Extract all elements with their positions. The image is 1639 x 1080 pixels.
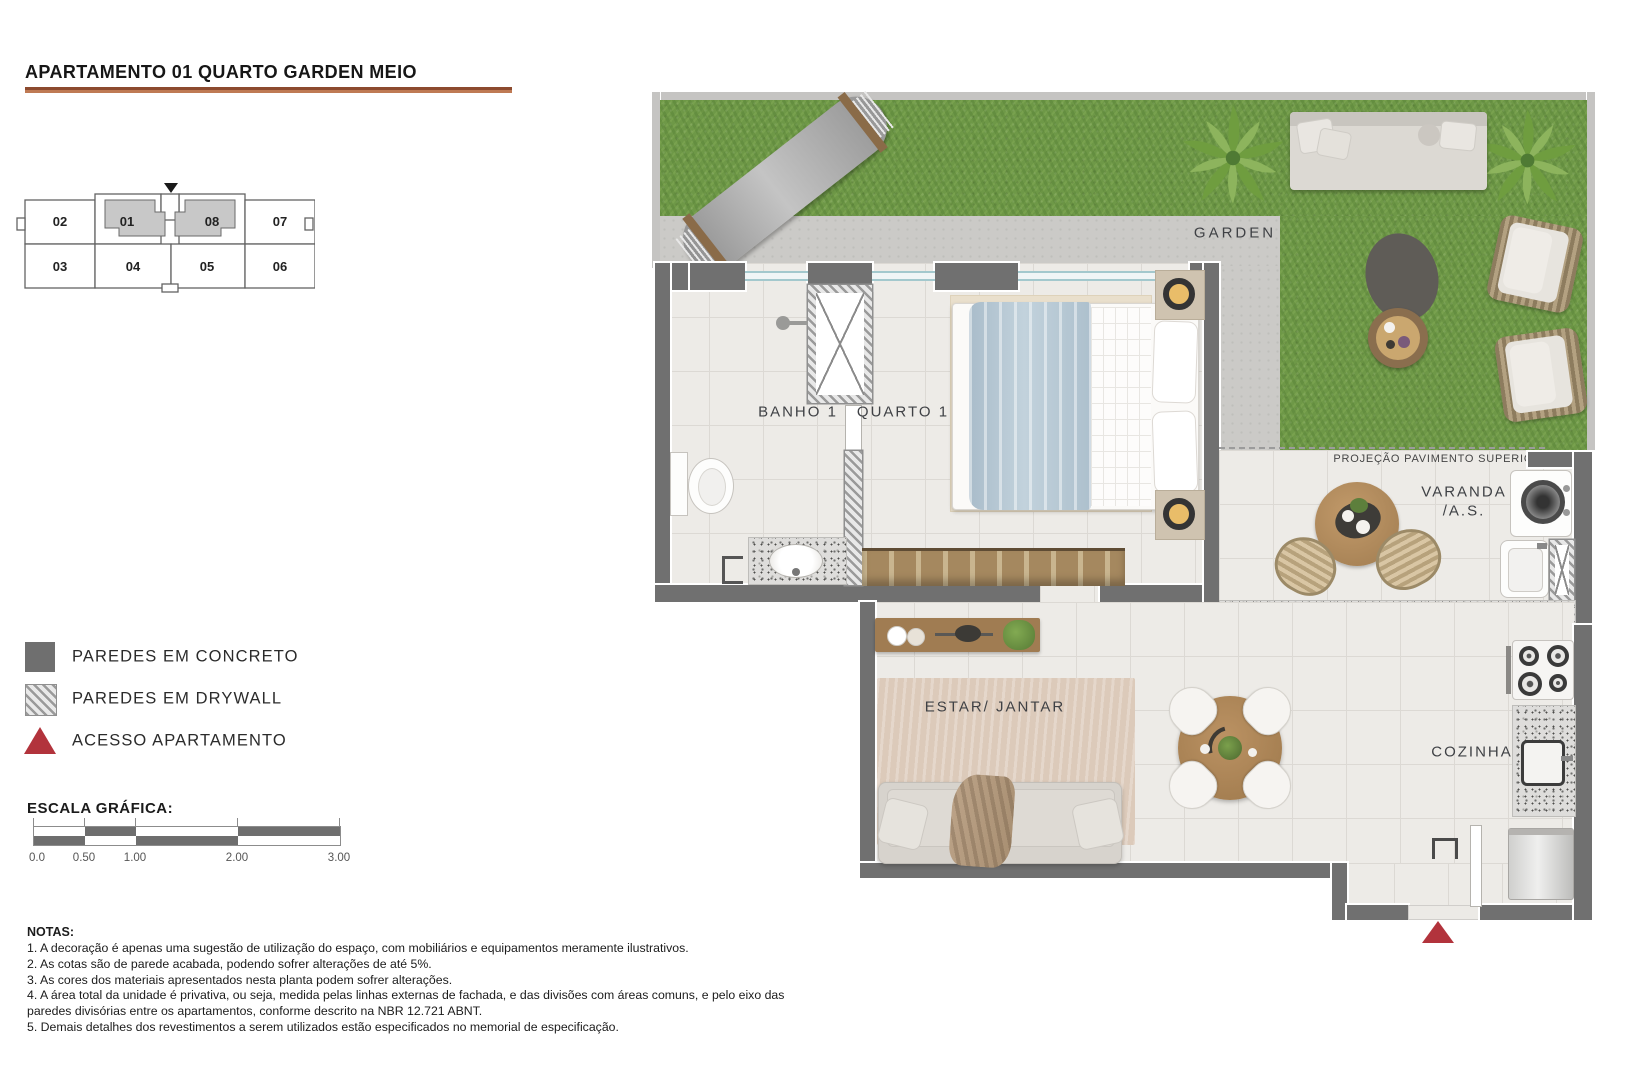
washing-machine — [1510, 470, 1572, 537]
floor-plan: GARDEN BANHO 1 QUARTO 1 — [650, 90, 1600, 950]
wall-right — [1574, 625, 1592, 920]
door-opening — [1040, 585, 1100, 602]
legend-label-concrete: PAREDES EM CONCRETO — [72, 648, 299, 667]
nightstand — [1155, 270, 1205, 320]
cup — [1356, 520, 1370, 534]
key-unit-label: 04 — [126, 259, 141, 274]
key-unit-label: 05 — [200, 259, 214, 274]
entry-door-stop-icon — [1432, 838, 1458, 859]
drywall-column — [1550, 540, 1574, 600]
plate — [1384, 322, 1395, 333]
title-underline — [25, 87, 512, 93]
bed-blanket — [969, 302, 1091, 510]
scale-tick — [237, 818, 238, 826]
decor-candle — [907, 628, 925, 646]
projection-dashed-line — [1219, 447, 1545, 449]
outdoor-sofa-bolster — [1418, 124, 1440, 146]
key-unit-label: 06 — [273, 259, 287, 274]
scale-label: 3.00 — [328, 852, 350, 864]
wall-top — [935, 263, 1018, 290]
armchair-pillow — [1509, 341, 1557, 408]
outdoor-sofa — [1290, 112, 1487, 190]
scale-label: 0.0 — [29, 852, 45, 864]
key-unit-label: 07 — [273, 214, 287, 229]
room-label-cozinha: COZINHA — [1431, 744, 1513, 761]
scale-tick — [135, 818, 136, 826]
kitchen-sink — [1521, 740, 1565, 786]
bed-pillow — [1152, 320, 1199, 403]
table-lamp-icon — [1163, 278, 1195, 310]
scale-seg — [34, 827, 85, 836]
toilet-tank — [670, 452, 688, 516]
scale-seg — [85, 836, 136, 845]
wall-left — [860, 602, 875, 878]
page-title: APARTAMENTO 01 QUARTO GARDEN MEIO — [25, 62, 417, 83]
wall-top — [690, 263, 745, 290]
wall-right — [1204, 263, 1219, 602]
room-label-varanda: VARANDA — [1421, 484, 1506, 501]
plant-sprig — [1350, 498, 1368, 513]
legend-access-triangle-icon — [24, 727, 56, 754]
outdoor-sofa-pillow — [1316, 127, 1353, 161]
table-plant — [1218, 736, 1242, 760]
plate — [1386, 340, 1395, 349]
sofa — [878, 782, 1122, 864]
bed-pillow — [1152, 410, 1199, 493]
shower-arm — [788, 321, 808, 325]
decor-candle — [887, 626, 907, 646]
decor-tray — [955, 625, 981, 642]
outdoor-sofa-pillow — [1439, 120, 1478, 152]
scale-seg — [34, 836, 85, 845]
stove-burner — [1549, 674, 1567, 692]
sideboard — [875, 618, 1040, 652]
bed — [952, 303, 1199, 510]
key-unit-label: 03 — [53, 259, 67, 274]
shower-box — [816, 293, 864, 395]
scale-label: 0.50 — [73, 852, 95, 864]
wall-bottom — [1347, 905, 1408, 920]
drywall-x — [1555, 545, 1569, 595]
scale-tick — [33, 818, 34, 826]
sofa-pillow — [1071, 797, 1126, 852]
key-unit-label: 08 — [205, 214, 219, 229]
stove — [1512, 640, 1574, 700]
scale-tick — [339, 818, 340, 826]
wall-step — [1332, 863, 1347, 920]
scale-bar-frame — [33, 826, 341, 846]
sofa-throw-blanket — [948, 773, 1016, 869]
entry-threshold — [1408, 905, 1480, 920]
legend-swatch-concrete — [25, 642, 55, 672]
key-unit-label: 01 — [120, 214, 134, 229]
wardrobe — [862, 548, 1125, 586]
toilet-bowl-inner — [698, 468, 726, 506]
room-label-banho: BANHO 1 — [758, 404, 838, 421]
scale-seg — [238, 836, 340, 845]
tank-basin — [1508, 548, 1543, 592]
key-unit-label: 02 — [53, 214, 67, 229]
note-item: 4. A área total da unidade é privativa, … — [27, 988, 827, 1020]
legend-label-drywall: PAREDES EM DRYWALL — [72, 690, 282, 709]
decor-plant — [1003, 620, 1035, 650]
vanity-faucet — [792, 568, 800, 576]
scale-seg — [136, 827, 238, 836]
wall-bottom — [655, 585, 1040, 602]
stove-burner — [1519, 646, 1539, 666]
entry-door-leaf — [1470, 825, 1482, 907]
toilet-bowl — [688, 458, 734, 514]
garden-wall-left — [652, 92, 660, 268]
side-walkway — [1219, 266, 1280, 450]
window — [745, 271, 808, 281]
oven-handle — [1506, 646, 1511, 694]
legend-swatch-drywall — [25, 684, 57, 716]
nightstand — [1155, 490, 1205, 540]
garden-armchair — [1493, 327, 1588, 424]
scale-heading: ESCALA GRÁFICA: — [27, 800, 173, 817]
scale-seg — [85, 827, 136, 836]
scale-seg — [238, 827, 340, 836]
scale-label: 1.00 — [124, 852, 146, 864]
note-item: 5. Demais detalhes dos revestimentos a s… — [27, 1020, 827, 1036]
cup — [1342, 510, 1354, 522]
plate — [1398, 336, 1410, 348]
garden-wall-top — [652, 92, 1595, 100]
legend-label-access: ACESSO APARTAMENTO — [72, 732, 287, 751]
shower-enclosure — [808, 285, 872, 403]
scale-bar: 0.0 0.50 1.00 2.00 3.00 — [33, 818, 353, 870]
plate — [1200, 744, 1210, 754]
key-notch-left — [17, 218, 25, 230]
room-label-estar: ESTAR/ JANTAR — [925, 699, 1065, 716]
palm-plant — [1173, 98, 1293, 218]
garden-wall-right — [1587, 92, 1595, 450]
access-triangle-icon — [1422, 921, 1454, 943]
washer-knob — [1563, 509, 1570, 516]
wall-right — [1574, 452, 1592, 625]
stove-burner — [1547, 645, 1569, 667]
room-label-varanda-as: /A.S. — [1443, 503, 1486, 520]
room-label-quarto: QUARTO 1 — [857, 404, 949, 421]
note-item: 3. As cores dos materiais apresentados n… — [27, 973, 827, 989]
kitchen-counter — [1512, 705, 1576, 817]
refrigerator — [1508, 828, 1574, 900]
window — [872, 271, 935, 281]
room-label-garden: GARDEN — [1194, 225, 1276, 242]
wall-bottom — [1100, 585, 1219, 602]
note-item: 2. As cotas são de parede acabada, poden… — [27, 957, 827, 973]
garden-armchair — [1485, 213, 1585, 315]
garden-coffee-table — [1368, 308, 1428, 368]
plate — [1248, 748, 1257, 757]
wall-left — [655, 263, 670, 602]
tank-faucet — [1537, 543, 1547, 549]
projection-label: PROJEÇÃO PAVIMENTO SUPERIOR — [1333, 453, 1542, 465]
scale-tick — [84, 818, 85, 826]
towel-bar-icon — [722, 556, 743, 584]
washer-knob — [1563, 485, 1570, 492]
laundry-tank — [1500, 540, 1549, 598]
scale-seg — [136, 836, 238, 845]
washer-drum — [1521, 480, 1565, 524]
key-notch-bottom — [162, 284, 178, 292]
scale-label: 2.00 — [226, 852, 248, 864]
kitchen-faucet — [1561, 756, 1573, 761]
key-plan: 02 01 08 07 03 04 05 06 — [15, 180, 315, 310]
key-marker-triangle-icon — [164, 183, 178, 193]
stove-burner — [1518, 672, 1542, 696]
wall-bottom — [860, 863, 1332, 878]
palm-plant — [1470, 103, 1585, 218]
drywall-partition — [845, 451, 862, 585]
bed-quilt — [1091, 307, 1151, 506]
refrigerator-top — [1509, 829, 1573, 835]
bathroom-vanity — [748, 537, 847, 585]
table-lamp-icon — [1163, 498, 1195, 530]
key-notch-right — [305, 218, 313, 230]
